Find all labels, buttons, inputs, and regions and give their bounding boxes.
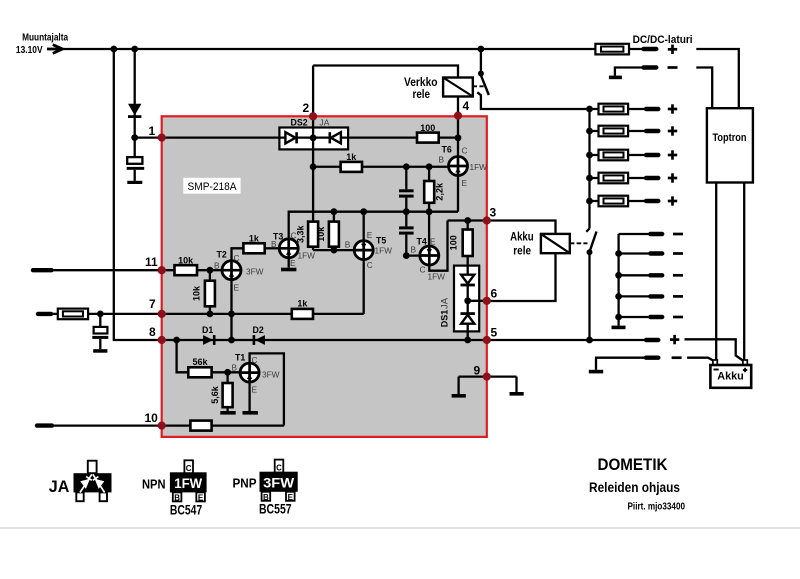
svg-text:1: 1 <box>149 124 156 138</box>
svg-text:1FW: 1FW <box>428 272 446 282</box>
svg-text:E: E <box>252 385 258 395</box>
svg-text:DOMETIK: DOMETIK <box>598 455 669 474</box>
svg-text:7: 7 <box>149 297 156 311</box>
svg-text:10k: 10k <box>178 256 194 266</box>
svg-text:rele: rele <box>413 89 431 101</box>
svg-text:1k: 1k <box>346 152 357 162</box>
svg-text:E: E <box>367 230 373 240</box>
svg-text:Akku: Akku <box>510 232 534 244</box>
svg-text:Toptron: Toptron <box>713 132 747 144</box>
svg-text:10k: 10k <box>192 285 202 301</box>
svg-text:E: E <box>462 178 468 188</box>
svg-text:E: E <box>290 258 296 268</box>
svg-text:C: C <box>276 463 282 472</box>
svg-text:13.10V: 13.10V <box>16 44 43 56</box>
svg-text:NPN: NPN <box>142 477 166 492</box>
svg-text:PNP: PNP <box>233 476 257 491</box>
svg-text:Releiden ohjaus: Releiden ohjaus <box>589 480 680 495</box>
svg-text:1FW: 1FW <box>298 251 316 261</box>
svg-text:3FW: 3FW <box>263 475 295 491</box>
svg-text:BC557: BC557 <box>259 501 292 517</box>
svg-text:11: 11 <box>145 255 158 269</box>
svg-text:Muuntajalta: Muuntajalta <box>22 32 68 43</box>
svg-text:JA: JA <box>319 117 329 127</box>
svg-text:6: 6 <box>491 287 498 301</box>
svg-text:B: B <box>214 261 220 271</box>
svg-text:3FW: 3FW <box>262 370 280 380</box>
svg-text:3: 3 <box>490 206 497 220</box>
svg-text:T5: T5 <box>376 236 386 246</box>
svg-text:8: 8 <box>149 325 156 339</box>
svg-text:100: 100 <box>449 235 459 250</box>
svg-text:4: 4 <box>463 99 470 113</box>
svg-text:B: B <box>271 239 277 249</box>
svg-text:9: 9 <box>474 364 481 378</box>
svg-text:1k: 1k <box>297 299 308 309</box>
svg-text:1FW: 1FW <box>174 475 203 491</box>
svg-text:3,3k: 3,3k <box>296 224 306 243</box>
svg-text:1k: 1k <box>249 234 260 244</box>
svg-text:C: C <box>252 355 258 365</box>
svg-text:10: 10 <box>145 411 159 425</box>
svg-text:D2: D2 <box>253 325 264 335</box>
svg-text:SMP-218A: SMP-218A <box>188 181 237 193</box>
svg-text:Akku: Akku <box>717 371 744 383</box>
svg-text:100: 100 <box>420 123 435 133</box>
svg-text:JA: JA <box>439 297 450 309</box>
svg-text:56k: 56k <box>192 357 208 367</box>
svg-text:5: 5 <box>491 326 498 340</box>
svg-text:C: C <box>420 265 426 275</box>
svg-text:B: B <box>439 155 445 165</box>
svg-text:T4: T4 <box>417 237 427 247</box>
svg-text:DS2: DS2 <box>291 118 308 128</box>
svg-text:C: C <box>462 146 468 156</box>
svg-text:B: B <box>411 245 417 255</box>
svg-text:C: C <box>234 253 240 263</box>
svg-text:1FW: 1FW <box>375 246 393 256</box>
svg-text:1FW: 1FW <box>470 162 488 172</box>
svg-text:10k: 10k <box>316 226 326 242</box>
svg-text:DS1: DS1 <box>439 310 449 328</box>
svg-text:B: B <box>232 363 238 373</box>
svg-text:JA: JA <box>49 477 70 496</box>
svg-text:B: B <box>345 240 351 250</box>
svg-text:5,6k: 5,6k <box>210 385 220 404</box>
svg-text:2,2k: 2,2k <box>435 182 445 201</box>
svg-text:D1: D1 <box>202 325 213 335</box>
svg-text:C: C <box>367 260 373 270</box>
svg-text:T1: T1 <box>235 353 245 363</box>
svg-text:T6: T6 <box>442 145 452 155</box>
svg-text:3FW: 3FW <box>246 267 264 277</box>
svg-text:E: E <box>430 237 436 247</box>
svg-text:rele: rele <box>513 246 531 258</box>
svg-text:E: E <box>234 283 240 293</box>
svg-text:C: C <box>291 231 297 241</box>
svg-text:DC/DC-laturi: DC/DC-laturi <box>633 34 693 46</box>
svg-text:T2: T2 <box>217 250 227 260</box>
svg-text:2: 2 <box>303 101 310 115</box>
svg-text:C: C <box>186 464 192 473</box>
svg-text:BC547: BC547 <box>170 502 202 518</box>
svg-text:Piirt. mjo33400: Piirt. mjo33400 <box>628 502 686 513</box>
svg-text:Verkko: Verkko <box>404 77 438 89</box>
